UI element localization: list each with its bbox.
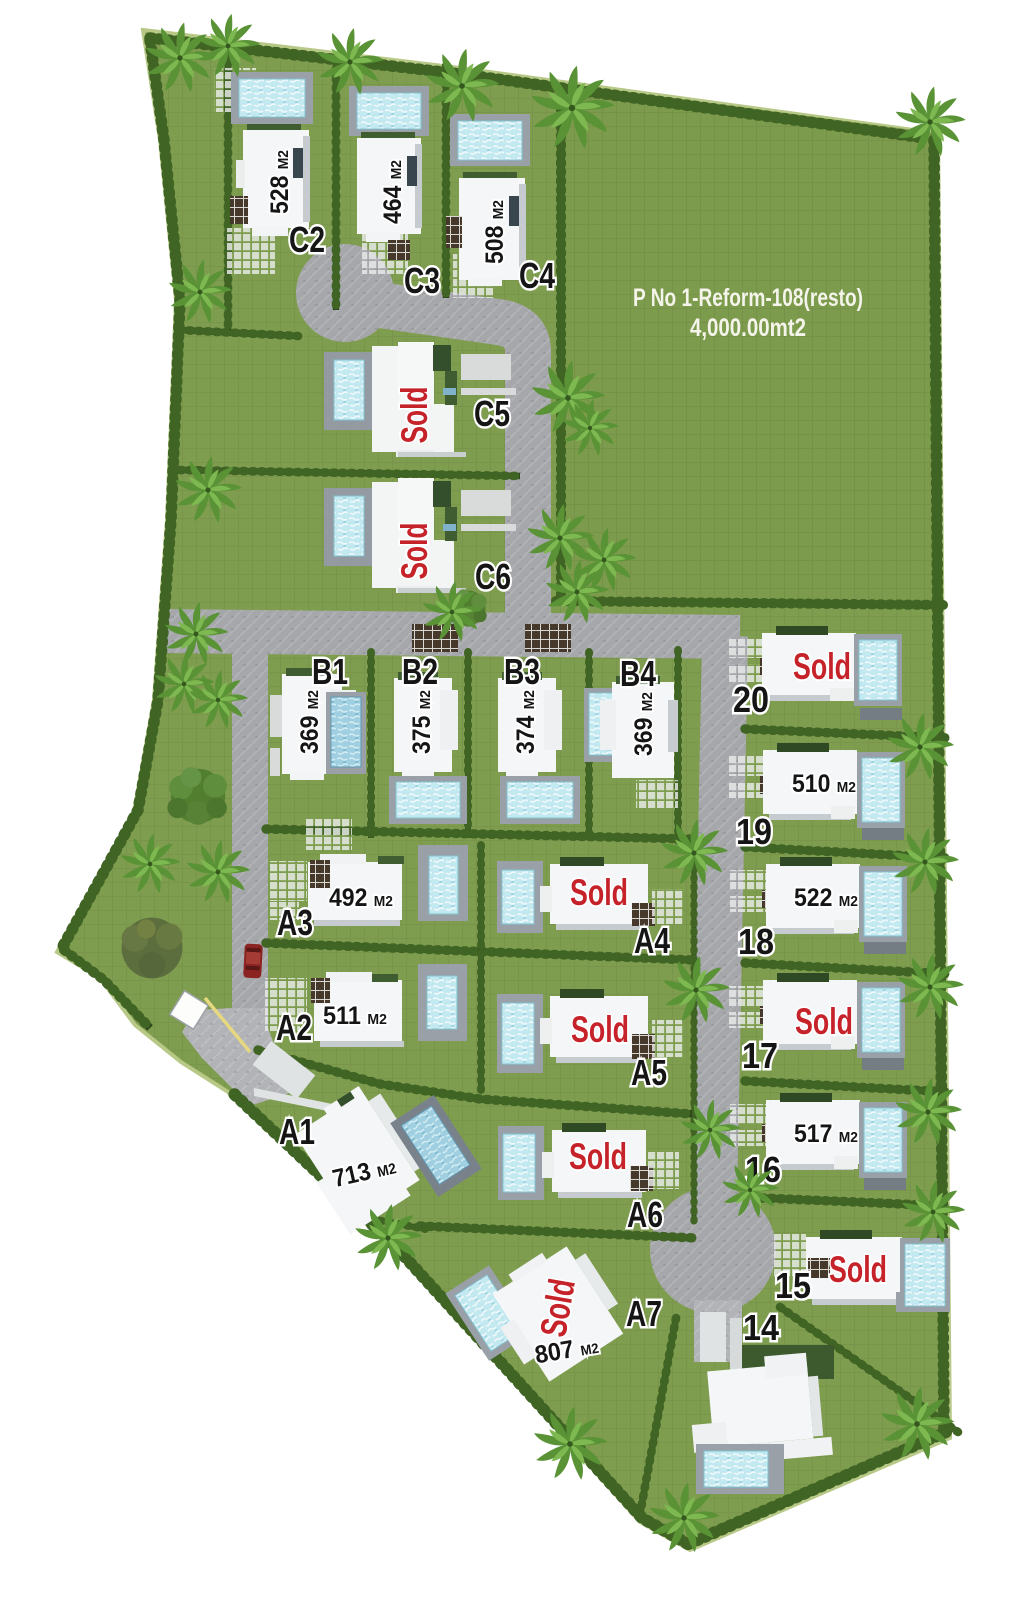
svg-text:14: 14 bbox=[743, 1307, 779, 1348]
svg-text:C5: C5 bbox=[474, 393, 510, 434]
svg-text:4,000.00mt2: 4,000.00mt2 bbox=[690, 314, 806, 342]
svg-text:A4: A4 bbox=[634, 920, 670, 961]
svg-text:C4: C4 bbox=[519, 255, 555, 296]
svg-text:A3: A3 bbox=[277, 902, 313, 943]
svg-text:Sold: Sold bbox=[571, 1009, 629, 1050]
svg-text:18: 18 bbox=[738, 921, 774, 962]
svg-text:Sold: Sold bbox=[570, 872, 628, 913]
svg-text:Sold: Sold bbox=[793, 646, 851, 687]
svg-text:Sold: Sold bbox=[829, 1249, 887, 1290]
svg-text:Sold: Sold bbox=[795, 1001, 853, 1042]
svg-text:P No 1-Reform-108(resto): P No 1-Reform-108(resto) bbox=[633, 284, 863, 312]
svg-text:C6: C6 bbox=[475, 556, 511, 597]
svg-text:B1: B1 bbox=[312, 651, 348, 692]
svg-text:Sold: Sold bbox=[394, 523, 435, 580]
svg-text:15: 15 bbox=[775, 1265, 811, 1306]
svg-text:B4: B4 bbox=[620, 653, 656, 694]
svg-text:A2: A2 bbox=[276, 1007, 312, 1048]
svg-text:17: 17 bbox=[742, 1035, 778, 1076]
svg-text:Sold: Sold bbox=[394, 387, 435, 444]
svg-text:B3: B3 bbox=[504, 651, 540, 692]
svg-text:C3: C3 bbox=[404, 260, 440, 301]
svg-text:C2: C2 bbox=[289, 219, 325, 260]
svg-text:A5: A5 bbox=[631, 1052, 667, 1093]
svg-text:B2: B2 bbox=[402, 651, 438, 692]
svg-text:Sold: Sold bbox=[569, 1136, 627, 1177]
svg-text:A6: A6 bbox=[627, 1194, 663, 1235]
svg-text:A1: A1 bbox=[279, 1111, 315, 1152]
svg-text:19: 19 bbox=[736, 811, 772, 852]
svg-text:20: 20 bbox=[733, 679, 769, 720]
svg-text:A7: A7 bbox=[626, 1293, 662, 1334]
